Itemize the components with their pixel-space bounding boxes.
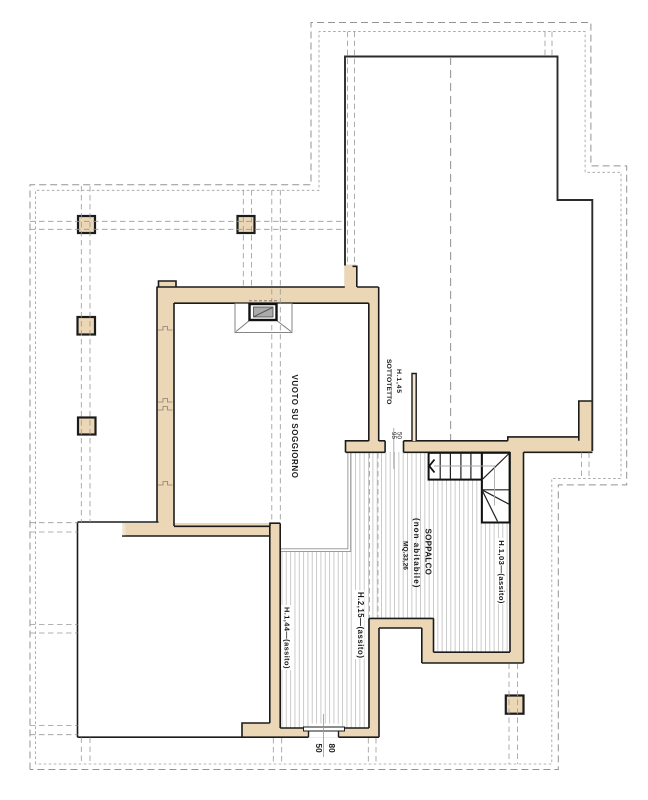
svg-text:80: 80 [327, 744, 337, 754]
svg-text:(non abitabile): (non abitabile) [412, 518, 421, 588]
svg-text:H.1,45: H.1,45 [395, 369, 402, 394]
svg-text:VUOTO SU SOGGIORNO: VUOTO SU SOGGIORNO [290, 375, 299, 479]
svg-text:MQ.33,26: MQ.33,26 [401, 541, 408, 570]
svg-text:95: 95 [390, 432, 397, 439]
svg-text:SOPPALCO: SOPPALCO [424, 529, 433, 576]
svg-text:H.2,15—(assito): H.2,15—(assito) [356, 592, 365, 658]
svg-text:50: 50 [314, 744, 324, 754]
svg-text:SOTTOTETTO: SOTTOTETTO [385, 359, 392, 404]
svg-text:H.1,44—(assito): H.1,44—(assito) [283, 607, 292, 669]
svg-text:H.1,03—(assito): H.1,03—(assito) [497, 540, 506, 604]
